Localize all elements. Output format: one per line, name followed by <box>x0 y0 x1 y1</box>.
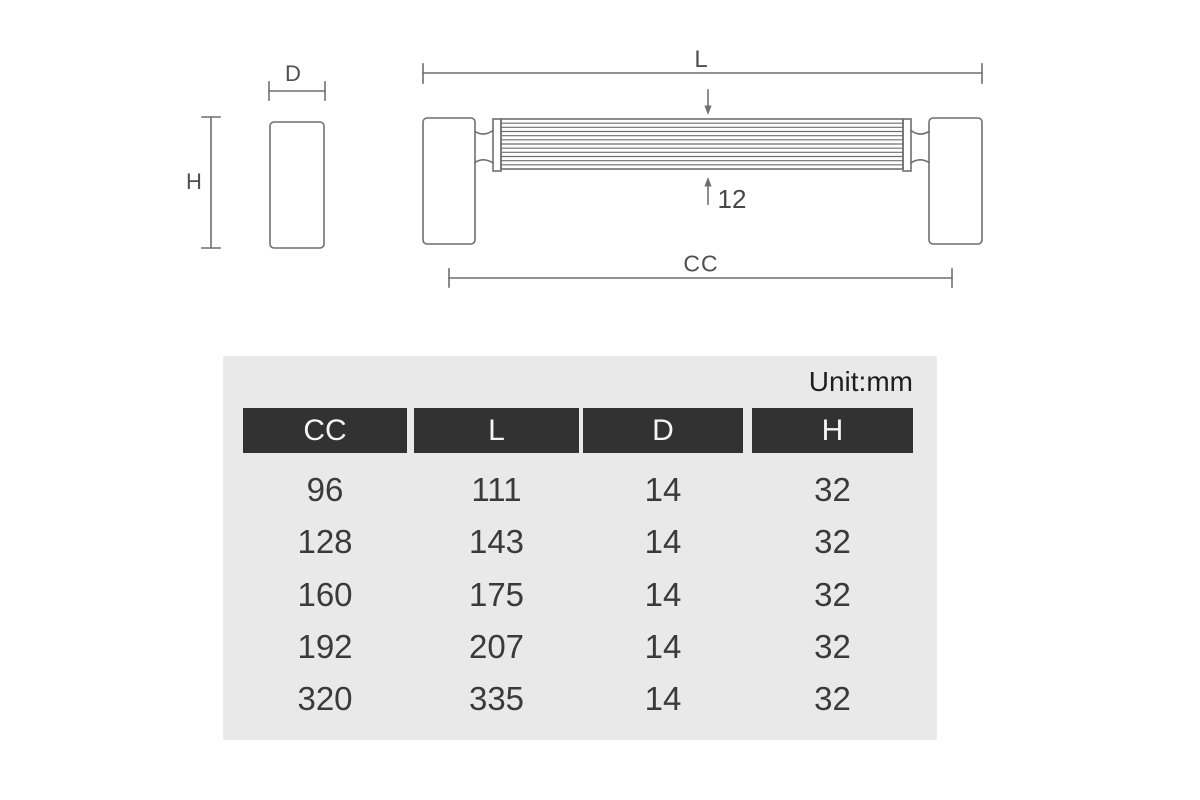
right-post <box>929 118 982 244</box>
arrow-down-icon <box>704 90 711 115</box>
right-neck <box>911 131 929 164</box>
table-cell: 14 <box>583 473 743 507</box>
table-row: 192 207 14 32 <box>223 630 937 664</box>
technical-drawing <box>0 0 1200 335</box>
column-header-cc: CC <box>243 408 407 453</box>
left-flange <box>493 119 501 171</box>
table-cell: 32 <box>752 630 913 664</box>
side-view-body <box>270 122 324 248</box>
table-cell: 32 <box>752 682 913 716</box>
handle-spec-sheet: D H L 12 CC Unit:mm CC L D H 96 111 14 3… <box>0 0 1200 800</box>
spec-table-panel: Unit:mm CC L D H 96 111 14 32 128 143 14… <box>223 356 937 740</box>
table-row: 160 175 14 32 <box>223 578 937 612</box>
h-dimension-label: H <box>186 171 202 193</box>
right-flange <box>903 119 911 171</box>
table-cell: 320 <box>243 682 407 716</box>
left-neck <box>475 131 493 164</box>
table-row: 128 143 14 32 <box>223 525 937 559</box>
table-cell: 128 <box>243 525 407 559</box>
table-cell: 14 <box>583 525 743 559</box>
bar-ridges <box>501 123 903 165</box>
table-cell: 143 <box>414 525 579 559</box>
cc-dimension-label: CC <box>683 253 718 276</box>
dimension-line-h <box>202 117 220 248</box>
table-cell: 14 <box>583 630 743 664</box>
arrow-up-icon <box>704 177 711 204</box>
table-cell: 32 <box>752 578 913 612</box>
table-cell: 192 <box>243 630 407 664</box>
table-cell: 14 <box>583 682 743 716</box>
column-header-d: D <box>583 408 743 453</box>
left-post <box>423 118 475 244</box>
table-cell: 96 <box>243 473 407 507</box>
table-cell: 207 <box>414 630 579 664</box>
l-dimension-label: L <box>694 48 707 72</box>
table-row: 96 111 14 32 <box>223 473 937 507</box>
table-row: 320 335 14 32 <box>223 682 937 716</box>
column-header-h: H <box>752 408 913 453</box>
side-view <box>202 82 325 248</box>
table-cell: 32 <box>752 525 913 559</box>
bar-diameter-label: 12 <box>718 186 747 212</box>
d-dimension-label: D <box>285 63 301 85</box>
table-cell: 32 <box>752 473 913 507</box>
table-cell: 14 <box>583 578 743 612</box>
table-cell: 111 <box>414 473 579 507</box>
table-cell: 160 <box>243 578 407 612</box>
handle-bar <box>501 119 903 169</box>
column-header-l: L <box>414 408 579 453</box>
table-cell: 335 <box>414 682 579 716</box>
unit-label: Unit:mm <box>809 368 913 396</box>
table-cell: 175 <box>414 578 579 612</box>
